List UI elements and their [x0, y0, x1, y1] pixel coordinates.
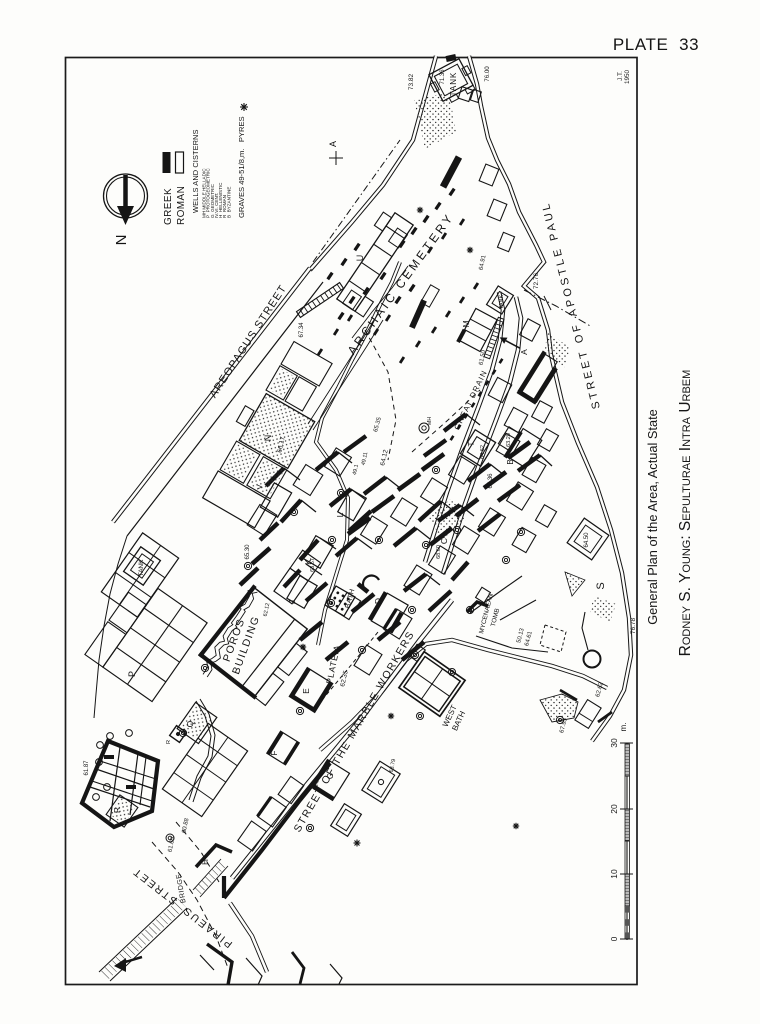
svg-text:ROMAN: ROMAN — [176, 186, 187, 225]
svg-text:R: R — [166, 740, 172, 744]
svg-text:M: M — [461, 320, 471, 327]
svg-text:B: B — [506, 459, 515, 464]
svg-text:R: R — [112, 807, 122, 813]
svg-text:67.34: 67.34 — [299, 322, 305, 338]
svg-text:S: S — [595, 582, 607, 589]
svg-text:G: G — [326, 773, 335, 779]
svg-text:m.: m. — [619, 723, 628, 732]
svg-text:TANK: TANK — [499, 295, 505, 310]
svg-text:T: T — [467, 441, 476, 446]
svg-text:B BYZANTINE: B BYZANTINE — [226, 187, 231, 218]
svg-text:10: 10 — [609, 869, 619, 879]
svg-text:65.30: 65.30 — [245, 544, 251, 560]
svg-text:76.00: 76.00 — [484, 66, 491, 82]
svg-text:A: A — [328, 141, 338, 147]
svg-text:Q: Q — [185, 720, 195, 727]
svg-text:TANK: TANK — [449, 72, 458, 97]
svg-text:64.62: 64.62 — [480, 445, 486, 459]
svg-text:GREEK: GREEK — [163, 188, 174, 225]
svg-text:72.76: 72.76 — [533, 272, 540, 289]
svg-text:20: 20 — [609, 804, 619, 814]
svg-text:General Plan of the Area, Actu: General Plan of the Area, Actual State — [645, 409, 660, 625]
svg-text:0: 0 — [609, 936, 619, 941]
svg-text:TANK: TANK — [138, 559, 145, 577]
svg-text:L: L — [335, 512, 345, 517]
svg-text:J.T.: J.T. — [617, 71, 624, 81]
svg-text:76.78: 76.78 — [630, 617, 637, 634]
svg-text:WELLS AND CISTERNS: WELLS AND CISTERNS — [191, 129, 200, 213]
svg-text:1950: 1950 — [624, 70, 631, 85]
svg-text:P: P — [127, 671, 137, 677]
svg-text:73.82: 73.82 — [408, 73, 415, 90]
svg-text:Rodney S. Young: Sepulturae In: Rodney S. Young: Sepulturae Intra Urbem — [677, 370, 694, 657]
svg-text:71.36: 71.36 — [440, 69, 446, 85]
svg-text:A: A — [519, 349, 529, 355]
svg-text:F: F — [270, 750, 279, 755]
svg-text:N: N — [113, 235, 130, 246]
svg-text:H: H — [201, 859, 210, 865]
svg-text:61.87: 61.87 — [84, 760, 90, 776]
svg-text:E: E — [301, 688, 311, 694]
svg-text:MH: MH — [427, 417, 433, 426]
svg-text:U: U — [355, 255, 365, 262]
svg-text:N: N — [263, 435, 273, 442]
svg-text:64.50: 64.50 — [584, 532, 590, 548]
svg-text:PLATE 33: PLATE 33 — [613, 35, 699, 54]
svg-text:D: D — [373, 598, 383, 604]
svg-text:GRAVES 49-51/8,m. PYRES: GRAVES 49-51/8,m. PYRES — [237, 116, 246, 218]
svg-text:30: 30 — [609, 738, 619, 748]
